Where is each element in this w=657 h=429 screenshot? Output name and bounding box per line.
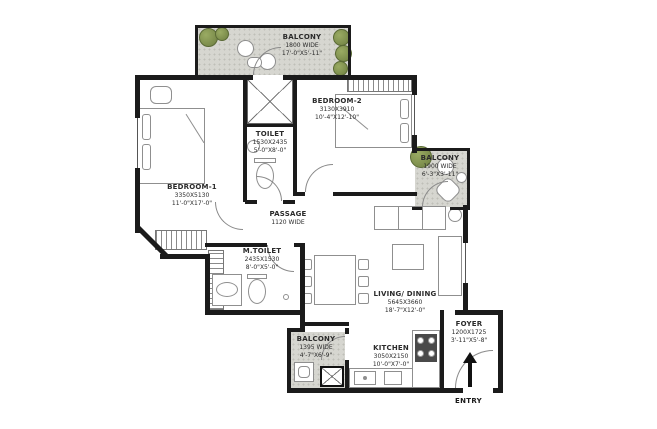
room-label: BALCONY 1900 WIDE 6'-3"X3'-11" [412,154,468,179]
room-dim-ft: 3'-11"X5'-8" [442,337,496,345]
room-label: FOYER 1200X1725 3'-11"X5'-8" [442,320,496,345]
room-dim-mm: 1200X1725 [442,329,496,337]
room-label: BEDROOM-1 3350X5130 11'-0"X17'-0" [154,183,230,208]
wall [345,360,349,392]
door-arc [257,176,282,201]
chair [150,86,172,104]
window-line [414,95,415,135]
wall [293,192,305,196]
wall [195,25,198,75]
wall [205,310,305,315]
washing-machine-drum [298,366,310,378]
room-label: M.TOILET 2435X1530 8'-0"X5'-0" [232,247,292,272]
wall [245,124,295,127]
pillow [400,99,409,119]
wall [245,200,257,204]
wall [283,200,295,204]
wall [303,322,349,326]
wall [412,148,470,151]
patio-chair [237,40,254,57]
room-name: PASSAGE [256,210,320,219]
door-opening [253,75,283,80]
room-dim-mm: 3130X3910 [300,106,374,114]
wall [450,207,470,210]
room-name: FOYER [442,320,496,329]
room-dim-ft: 10'-0"X7'-0" [358,361,424,369]
room-name: TOILET [245,130,295,139]
room-label: BALCONY 1800 WIDE 17'-0"X5'-11" [262,33,342,58]
room-dim-mm: 3350X5130 [154,192,230,200]
wall [333,192,417,196]
wall [205,254,210,315]
entry-arrow-stem [468,362,472,387]
wall [498,310,503,393]
room-label: TOILET 1530X2435 5'-0"X8'-0" [245,130,295,155]
wall [345,328,349,334]
wall [412,207,422,210]
door-arc [305,164,333,192]
stove-burner [428,350,435,357]
room-dim-mm: 1530X2435 [245,139,295,147]
room-name: BALCONY [412,154,468,163]
room-name: KITCHEN [358,344,424,353]
room-dim-ft: 17'-0"X5'-11" [262,50,342,58]
planter [215,27,229,41]
room-dim-ft: 6'-3"X3'-11" [412,171,468,179]
sofa [438,236,462,296]
room-dim-mm: 1800 WIDE [262,42,342,50]
window-line [465,243,466,283]
wc [248,279,266,304]
pillow [400,123,409,143]
room-dim-ft: 11'-0"X17'-0" [154,200,230,208]
sofa-cushion-line [398,207,399,229]
window-line [137,118,138,168]
room-dim-ft: 8'-0"X5'-0" [232,264,292,272]
pillow [142,114,151,140]
room-label: LIVING/ DINING 5645X3660 18'-7"X12'-0" [364,290,446,315]
sink-drain [363,376,367,380]
wardrobe [347,79,412,92]
room-dim-mm: 1120 WIDE [256,219,320,227]
room-dim-ft: 5'-0"X8'-0" [245,147,295,155]
dining-table [314,255,356,305]
entry-label: ENTRY [455,397,482,405]
floor-plan: BALCONY 1800 WIDE 17'-0"X5'-11" BALCONY … [0,0,657,429]
wall [287,388,463,393]
wall [195,25,351,28]
room-name: BEDROOM-1 [154,183,230,192]
room-label: BALCONY 1395 WIDE 4'-7"X6'-9" [288,335,344,360]
side-table [448,208,462,222]
sink [216,282,238,297]
room-label: KITCHEN 3050X2150 10'-0"X7'-0" [358,344,424,369]
room-dim-mm: 3050X2150 [358,353,424,361]
wall [160,254,210,259]
coffee-table [392,244,424,270]
room-name: BEDROOM-2 [300,97,374,106]
room-dim-mm: 1900 WIDE [412,163,468,171]
pillow [142,144,151,170]
wall [348,25,351,75]
dining-chair [358,259,369,270]
sofa [374,206,446,230]
stove-burner [417,337,424,344]
room-dim-mm: 1395 WIDE [288,344,344,352]
room-dim-ft: 18'-7"X12'-0" [364,307,446,315]
dining-chair [358,276,369,287]
room-name: M.TOILET [232,247,292,256]
wall [300,243,305,314]
counter-square [384,371,402,385]
planter [333,61,348,76]
duct-shaft [320,366,344,387]
room-name: LIVING/ DINING [364,290,446,299]
floor-drain [283,294,289,300]
room-dim-ft: 10'-4"X12'-10" [300,114,374,122]
sofa-cushion-line [422,207,423,229]
wardrobe [247,79,293,124]
stove-burner [428,337,435,344]
room-label: PASSAGE 1120 WIDE [256,210,320,227]
room-dim-ft: 4'-7"X6'-9" [288,352,344,360]
room-name: BALCONY [262,33,342,42]
room-dim-mm: 5645X3660 [364,299,446,307]
wardrobe [155,230,207,250]
room-dim-mm: 2435X1530 [232,256,292,264]
room-label: BEDROOM-2 3130X3910 10'-4"X12'-10" [300,97,374,122]
room-name: BALCONY [288,335,344,344]
